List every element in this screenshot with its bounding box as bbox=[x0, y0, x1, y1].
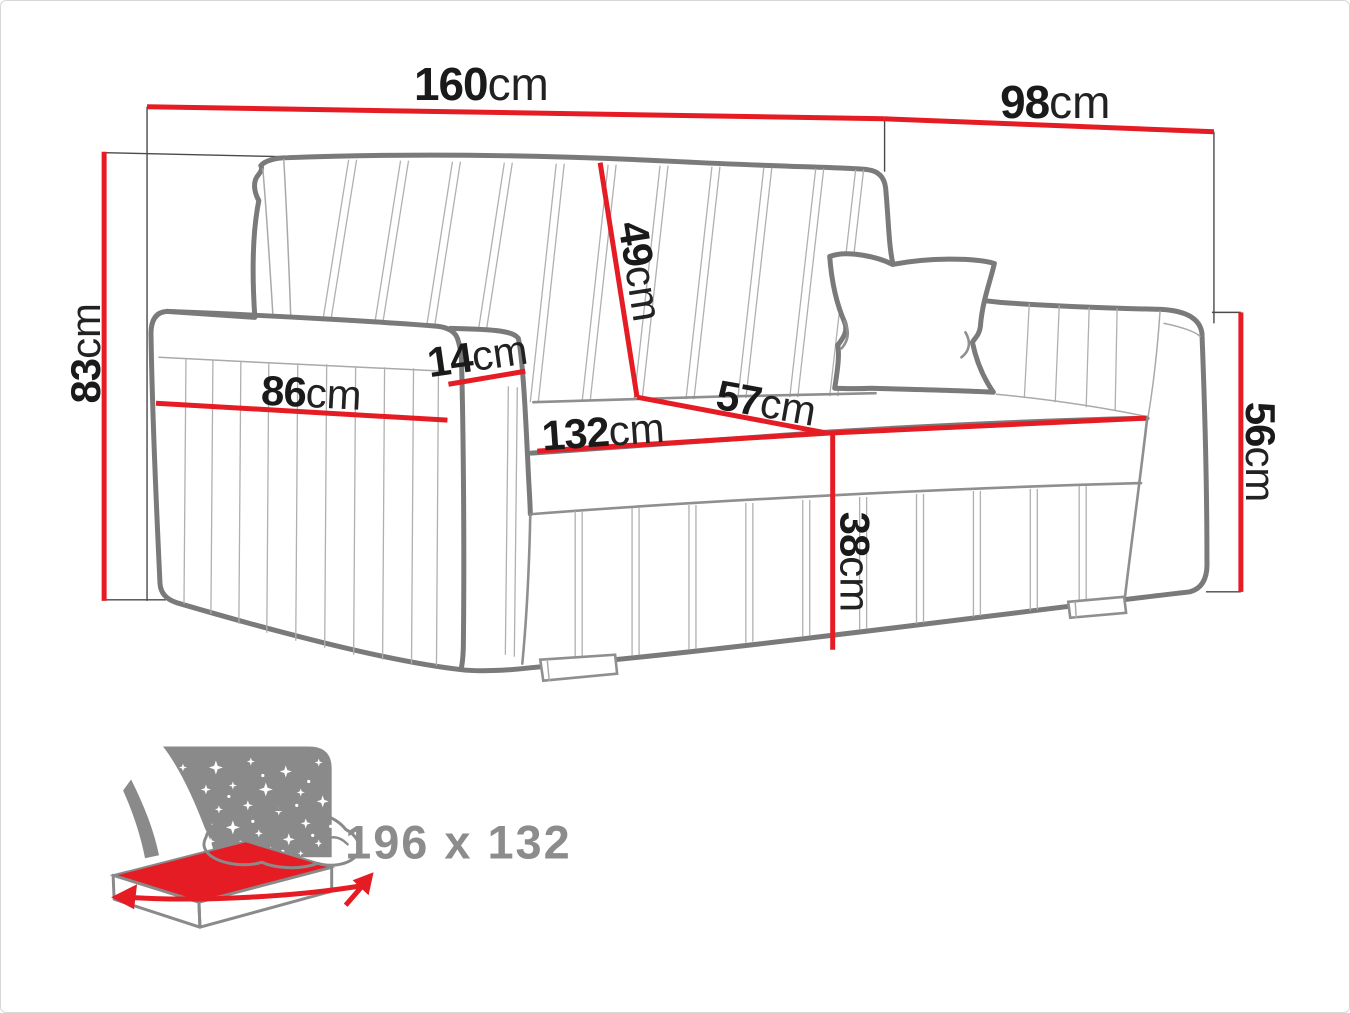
sofa-bed-sleeping-icon: 196 x 132 bbox=[111, 747, 572, 928]
front-left-leg bbox=[540, 655, 617, 681]
label-total-height: 83cm bbox=[62, 303, 109, 403]
pillow bbox=[830, 254, 995, 392]
label-total-depth: 98cm bbox=[1000, 76, 1110, 128]
moon-sliver bbox=[123, 779, 159, 858]
sofa-drawing bbox=[151, 155, 1207, 680]
front-right-leg bbox=[1068, 597, 1126, 618]
label-seat-width: 132cm bbox=[540, 404, 666, 459]
sleeping-size-label: 196 x 132 bbox=[345, 816, 572, 868]
label-base-height: 38cm bbox=[832, 512, 879, 613]
diagram-canvas: 160cm 98cm 83cm 49cm 14cm 86cm 132cm 57c… bbox=[0, 0, 1350, 1013]
label-total-width: 160cm bbox=[414, 58, 549, 110]
label-armrest-height: 56cm bbox=[1237, 402, 1284, 503]
label-armrest-length: 86cm bbox=[260, 367, 363, 419]
